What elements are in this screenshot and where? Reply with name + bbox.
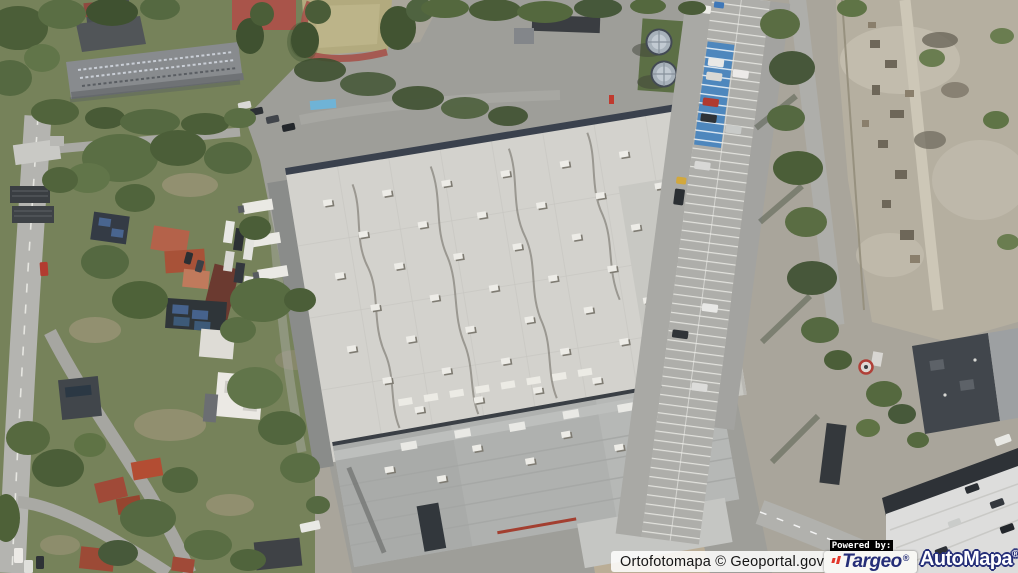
attribution-text: Ortofotomapa © Geoportal.gov.pl [611, 551, 848, 572]
automapa-logo[interactable]: AutoMapa® [920, 548, 1018, 571]
automapa-registered-mark: ® [1012, 549, 1018, 560]
aerial-photo[interactable] [0, 0, 1018, 573]
map-viewport: Ortofotomapa © Geoportal.gov.pl Powered … [0, 0, 1018, 573]
targeo-registered-mark: ® [903, 551, 909, 565]
targeo-logo[interactable]: Targeo ® [824, 551, 917, 573]
targeo-quote-icon [832, 556, 841, 568]
targeo-wordmark: Targeo [842, 551, 902, 573]
automapa-wordmark: AutoMapa [920, 548, 1012, 570]
